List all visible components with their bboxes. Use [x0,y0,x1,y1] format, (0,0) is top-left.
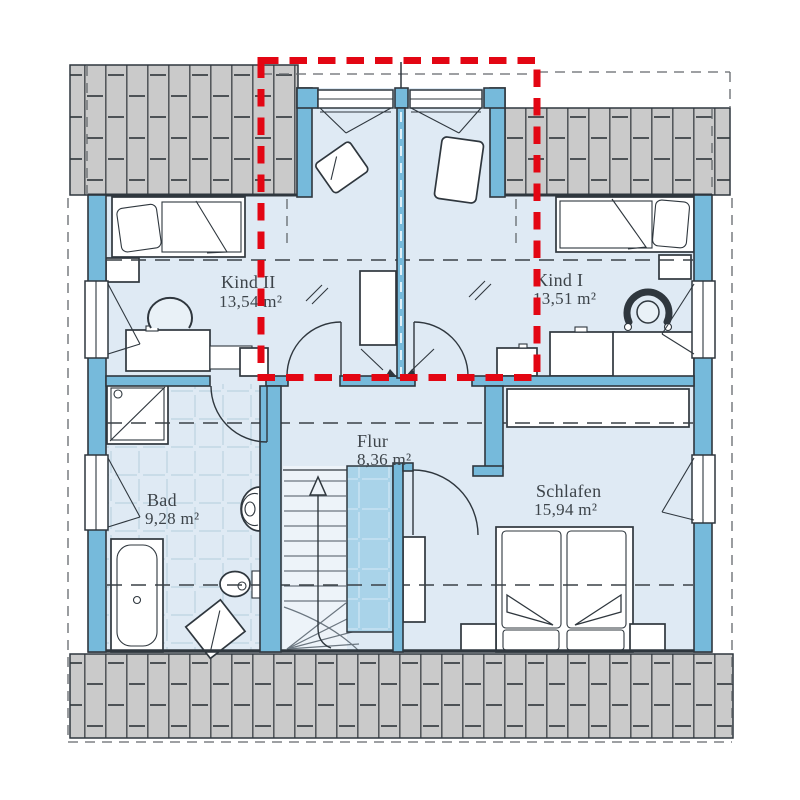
desk-item [575,327,587,332]
bathtub [111,539,163,652]
pillow [652,200,690,249]
exterior-wall-left [88,195,106,652]
faucet [245,502,255,516]
nightstand-right [630,624,665,651]
mattress [434,136,484,203]
nightstand [106,258,139,282]
room-area-kind2: 13,54 m² [219,292,282,311]
room-area-schlafen: 15,94 m² [534,500,597,519]
nightstand [659,255,691,279]
room-area-kind1: 13,51 m² [533,289,596,308]
desk-left [550,332,614,376]
dresser [497,348,537,376]
room-label-bad: Bad [147,490,177,510]
floor-plan-svg: Kind II 13,54 m² Kind I 13,51 m² Flur 8,… [0,0,800,800]
bath-hall-wall [260,386,281,652]
floor-plan-image: Kind II 13,54 m² Kind I 13,51 m² Flur 8,… [0,0,800,800]
closet [360,271,396,345]
room-label-flur: Flur [357,431,388,451]
desk [126,330,210,371]
room-area-flur: 8,36 m² [357,450,411,469]
room-area-bad: 9,28 m² [145,509,199,528]
tub-drain [134,597,141,604]
room-label-schlafen: Schlafen [536,481,601,501]
pillow-left [503,630,559,650]
shower-drain [114,390,122,398]
stairwell-shaft [347,466,393,632]
pillow-right [567,630,624,650]
staircase [283,466,393,652]
room-label-kind2: Kind II [221,272,276,292]
chair [148,298,192,328]
hall-bedroom-wall [485,386,503,468]
stairwell-wall [393,463,403,652]
roof-hatch-top-right [505,108,730,195]
nightstand-left [461,624,496,651]
exterior-wall-right [694,195,712,652]
pillow [116,204,162,253]
wardrobe [507,389,689,427]
chair-seat [637,301,659,323]
desk-right [613,332,694,377]
side-wardrobe [403,537,425,622]
roof-hatch-bottom [70,654,733,738]
room-label-kind1: Kind I [535,270,583,290]
